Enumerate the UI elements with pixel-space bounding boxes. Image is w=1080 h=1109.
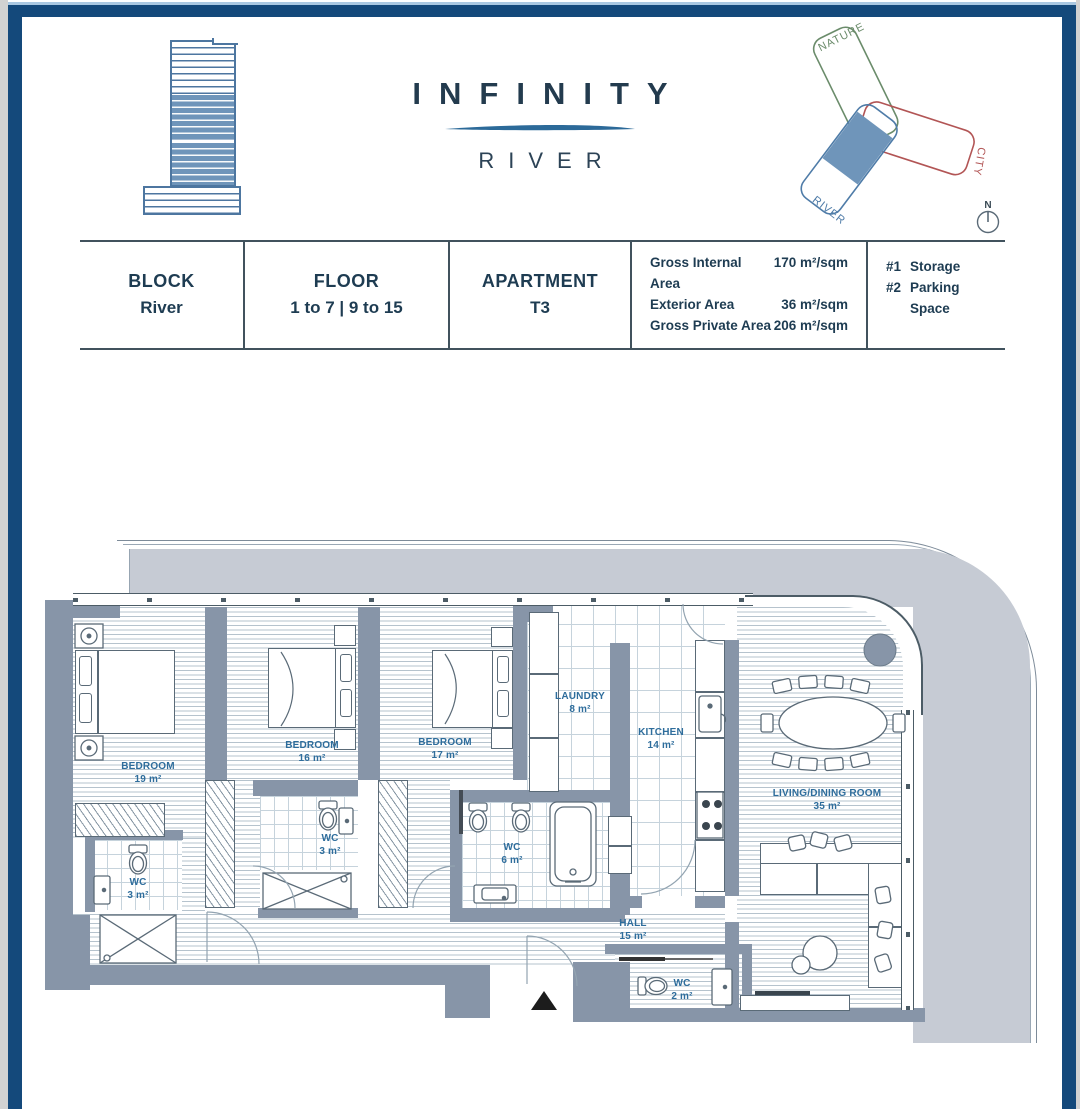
apartment-header: APARTMENT [482,271,598,292]
info-cell-areas: Gross Internal Area 170 m²/sqm Exterior … [632,242,868,348]
tv-console [740,995,850,1011]
extra-num: #1 [886,256,901,277]
area-value: 206 m²/sqm [774,315,848,336]
info-cell-block: BLOCK River [80,242,245,348]
compass-n-label: N [984,200,991,211]
bed-bedroom-16 [268,648,356,728]
glass-wall-curve [745,595,923,715]
entrance-marker-icon [531,991,557,1010]
room-label-hall: HALL 15 m² [573,917,693,943]
river-label: RIVER [810,194,848,227]
area-value: 36 m²/sqm [781,294,848,315]
tv-soundbar [755,991,810,995]
wall [445,965,490,1018]
site-diagram: NATURE CITY RIVER N [800,20,1060,240]
wall [85,830,95,912]
area-value: 170 m²/sqm [774,252,848,294]
extra-row: #1 Storage [874,256,999,277]
wall [513,607,527,780]
apartment-value: T3 [530,298,550,318]
window-band-top [73,593,753,606]
extra-row: #2 Parking Space [874,277,999,319]
info-cell-apartment: APARTMENT T3 [450,242,632,348]
area-row: Gross Internal Area 170 m²/sqm [638,252,860,294]
floor-value: 1 to 7 | 9 to 15 [290,298,402,318]
wardrobe [205,780,235,908]
room-label-kitchen: KITCHEN 14 m² [611,726,711,752]
wall [725,922,739,1022]
wardrobe [75,803,165,837]
wall [253,780,358,796]
tower-logo-notch [212,38,238,45]
kitchen-counter [695,640,725,892]
area-row: Exterior Area 36 m²/sqm [638,294,860,315]
terrace-right [913,549,1030,1043]
area-label: Gross Private Area [650,315,774,336]
room-label-laundry: LAUNDRY 8 m² [530,690,630,716]
nightstand [491,627,513,647]
sofa-back [760,843,905,865]
room-label-wc-3b: WC 3 m² [300,832,360,858]
room-label-wc-2: WC 2 m² [652,977,712,1003]
window-band-right [901,710,914,1010]
info-cell-floor: FLOOR 1 to 7 | 9 to 15 [245,242,450,348]
floor-plan: BEDROOM 19 m² BEDROOM 16 m² BEDROOM 17 m… [45,540,1035,1045]
info-cell-extras: #1 Storage #2 Parking Space [868,242,1005,348]
wall [450,790,462,920]
nature-label: NATURE [816,21,866,55]
wall [73,965,445,985]
floor-corridor-1 [235,780,260,908]
hall-cabinet [608,816,632,874]
wall [205,607,227,780]
wall [45,600,73,920]
room-label-bedroom-19: BEDROOM 19 m² [88,760,208,786]
wall [695,896,725,908]
area-label: Exterior Area [650,294,781,315]
wall [610,643,630,915]
tower-logo-base [143,186,241,215]
room-label-bedroom-17: BEDROOM 17 m² [385,736,505,762]
wall [725,640,739,896]
floor-header: FLOOR [314,271,380,292]
city-label: CITY [971,146,988,177]
extra-label: Storage [910,256,960,277]
room-label-bedroom-16: BEDROOM 16 m² [252,739,372,765]
extra-num: #2 [886,277,901,319]
bed-bedroom-17 [432,650,513,728]
bed-bedroom-19 [75,650,175,734]
block-header: BLOCK [128,271,195,292]
apartment-location-fill [823,112,893,185]
extra-label: Parking Space [910,277,987,319]
nightstand [334,625,356,646]
room-label-living-dining: LIVING/DINING ROOM 35 m² [747,787,907,813]
block-value: River [140,298,183,318]
floor-corridor-2 [408,780,450,908]
compass: N [978,200,999,233]
info-table: BLOCK River FLOOR 1 to 7 | 9 to 15 APART… [80,240,1005,350]
area-label: Gross Internal Area [650,252,774,294]
room-label-wc-6: WC 6 m² [482,841,542,867]
wardrobe [378,780,408,908]
floorplan-sheet: INFINITY RIVER NATURE CITY RIVER N [0,0,1080,1109]
frame-top [8,5,1076,17]
wall [630,896,642,908]
area-row: Gross Private Area 206 m²/sqm [638,315,860,336]
wall [258,908,358,918]
brand-swoosh [445,124,635,132]
room-label-wc-3a: WC 3 m² [108,876,168,902]
